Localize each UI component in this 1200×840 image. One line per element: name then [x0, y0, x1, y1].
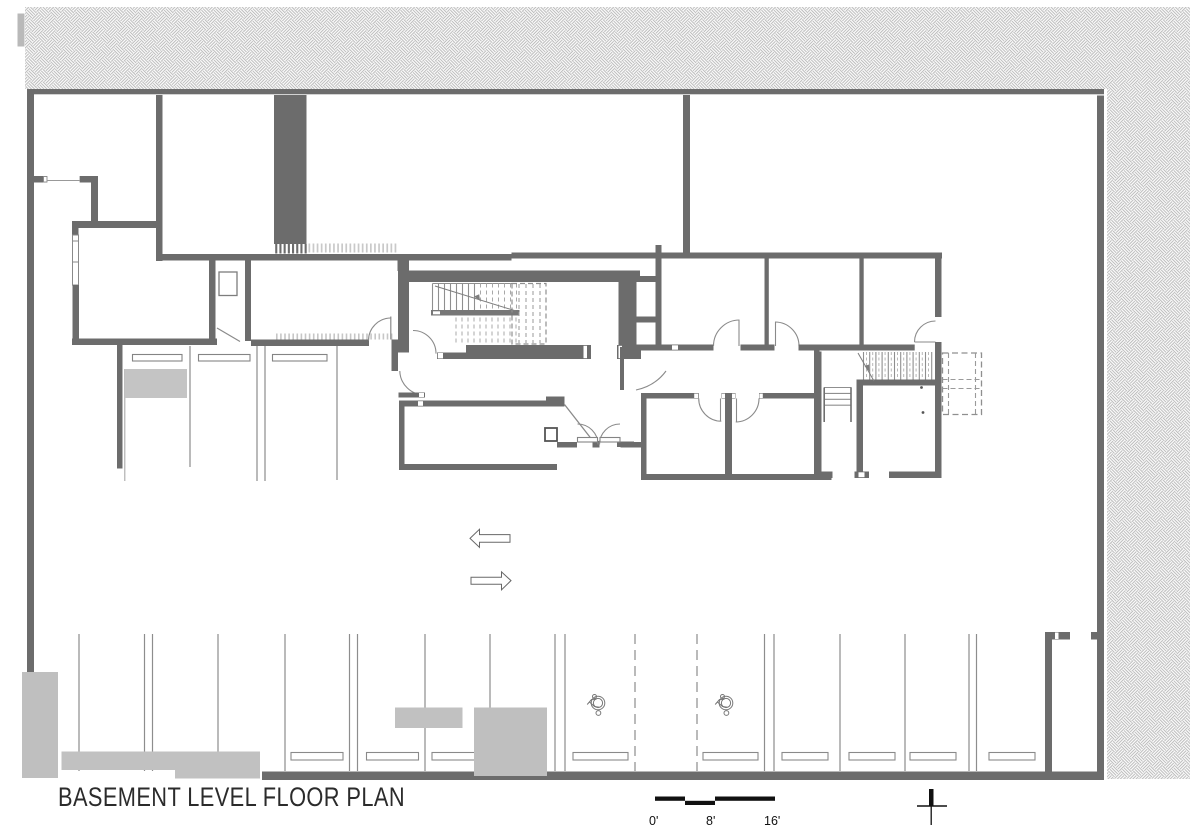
svg-text:0': 0' — [649, 814, 658, 828]
svg-text:8': 8' — [706, 814, 715, 828]
svg-text:16': 16' — [764, 814, 780, 828]
svg-text:BASEMENT LEVEL FLOOR PLAN: BASEMENT LEVEL FLOOR PLAN — [58, 782, 405, 812]
